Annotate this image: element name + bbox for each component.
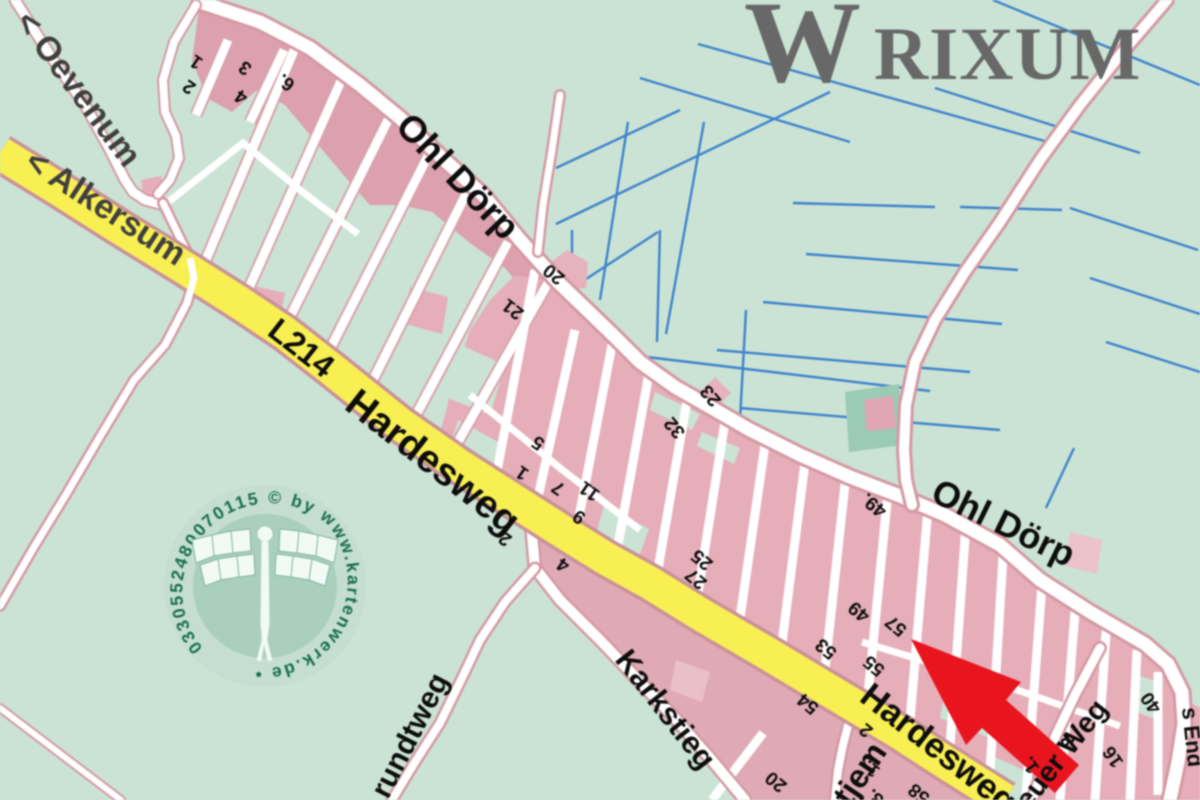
- svg-text:RIXUM: RIXUM: [874, 13, 1141, 96]
- svg-text:W: W: [744, 0, 861, 107]
